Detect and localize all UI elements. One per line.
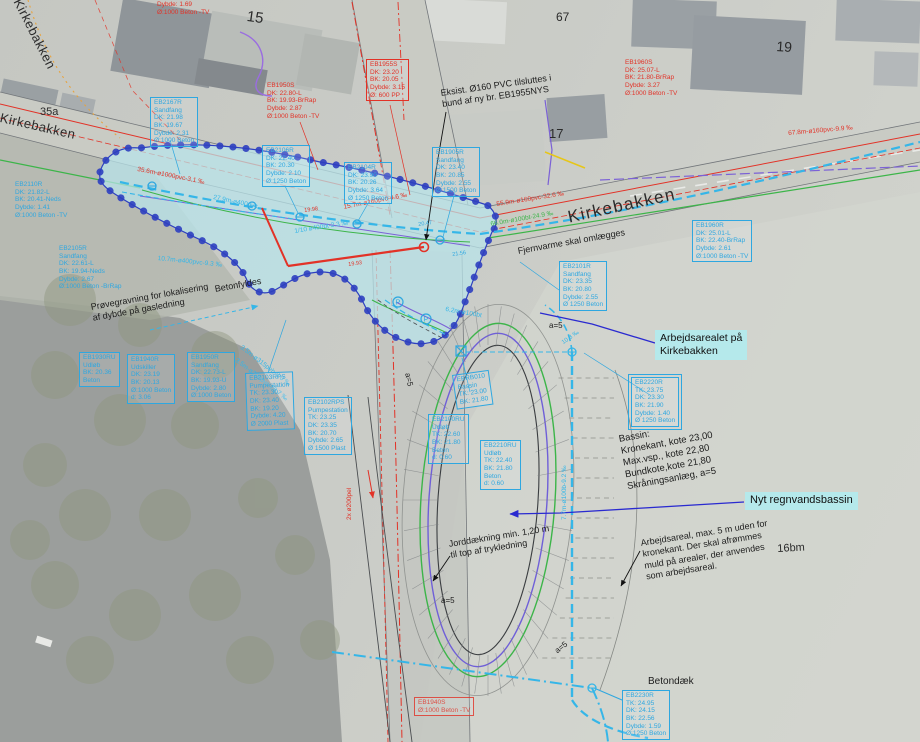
annotation-note: Fjernvarme skal omlægges [517, 227, 626, 257]
pump-icon [421, 314, 431, 324]
manhole-icon [148, 182, 156, 190]
connection-node-icon [420, 243, 429, 252]
trees [10, 274, 340, 684]
manhole-icon [588, 684, 596, 692]
manhole-label-eb2105r: EB2105RSandfangDK: 22.61-LBK: 19.94-Neds… [59, 245, 122, 291]
callout-arbejdsareal: Arbejdsarealet på Kirkebakken [655, 330, 747, 360]
callout-nyt-regnvandsbassin: Nyt regnvandsbassin [745, 492, 858, 510]
building-roof [835, 0, 920, 43]
manhole-label-eb2110r: EB2110RDK: 21.82-LBK: 20.41-NedsDybde: 1… [15, 181, 67, 219]
road-label-kirkebakken: Kirkebakken [566, 184, 678, 227]
pipe-label: 67.8m-ø160pvc-9.9 ‰ [788, 124, 853, 137]
pipe-label: 2x ø200pel [346, 488, 353, 520]
pipe-label: 1/10 ø400bt-2.3 ‰ [294, 220, 349, 235]
house-number: 19 [776, 38, 793, 57]
manhole-icon [436, 236, 444, 244]
annotation-note: a=5 [402, 372, 415, 387]
annotation-note: a=5 [549, 321, 563, 331]
manhole-label-ebrb010: EBRB010BassinTK: 23.00BK: 21.80 [452, 370, 493, 409]
pipe-label: 6.2m-ø100bt [445, 306, 483, 319]
annotation-note: Betonfyldes [214, 276, 262, 295]
house-number: 15 [245, 8, 264, 29]
annotation-note: Betondæk [648, 676, 694, 689]
pipe-label: 10.3 ‰ [561, 330, 580, 346]
manhole-label-eb1950s: EB1950SDK: 22.80-LBK: 19.93-BrRapDybde: … [267, 82, 319, 120]
pump-icon [393, 297, 403, 307]
manhole-label-eb2101r: EB2101RSandfangDK: 23.35BK: 20.80Dybde: … [559, 261, 607, 311]
boat [35, 636, 52, 648]
svg-text:P: P [424, 317, 429, 324]
manhole-label-eb2102rps: EB2102RPSPumpestationTK: 23.25DK: 23.35B… [304, 397, 352, 455]
annotation-note: Arbejdsareal, max. 5 m uden forkronekant… [640, 518, 774, 582]
manhole-icon [353, 220, 361, 228]
manhole-label-eb1950r: EB1950RSandfangDK: 22.73-LBK: 19.93-UDyb… [187, 352, 235, 402]
manhole-label-eb2220r: EB2220RTK: 23.75DK: 23.30BK: 21.90Dybde:… [631, 377, 679, 427]
site-plan-drawing: PP Kirkebakken Kirkebakken Kirkebakken A… [0, 0, 920, 742]
manhole-label-eb1940s: EB1940SØ:1000 Beton -TV [414, 697, 474, 716]
building-roof [58, 93, 95, 120]
basin-rings [390, 299, 587, 702]
house-number: 17 [549, 126, 563, 142]
building-roof [419, 0, 507, 44]
manhole-label-dybde-1-69: Dybde: 1.69Ø:1000 Beton -TV [157, 1, 209, 16]
manhole-label-eb2230r: EB2230RTK: 24.95DK: 24.15BK: 22.56Dybde:… [622, 690, 670, 740]
manhole-label-eb2210ru: EB2210RUUdløbTK: 22.40BK: 21.80Betond: 0… [480, 440, 521, 490]
house-number: 16bm [777, 542, 805, 557]
house-number: 67 [556, 10, 569, 25]
annotation-note: a=5 [553, 640, 570, 656]
manhole-label-eb2100ru: EB2100RUUdløbTK: 22.60BK: 21.80Betond: 0… [428, 414, 469, 464]
manhole-label-eb1955s: EB1955SDK: 23.20BK: 20.05Dybde: 3.15Ø: 6… [366, 59, 409, 101]
pipe-label: 19.98 [304, 206, 318, 214]
pipe-label: 21.56 [452, 250, 466, 258]
house-number: 35a [40, 106, 58, 120]
pipe-label: 66.0m-ø100bt-24.9 ‰ [490, 210, 554, 228]
manhole-symbols: PP [148, 182, 596, 692]
building-roof [873, 51, 918, 87]
annotation-note: a=5 [441, 596, 455, 606]
manhole-label-eb2106r: EB2106RDK: 22.40BK: 20.30Dybde: 2.10Ø:12… [262, 145, 310, 187]
svg-text:P: P [396, 300, 401, 307]
manhole-label-eb1960s: EB1960SDK: 25.07-LBK: 21.80-BrRapDybde: … [625, 59, 677, 97]
manhole-label-eb2167r: EB2167RSandfangDK: 21.98BK: 19.67Dybde: … [150, 97, 198, 147]
pipe-label: 7.7m-ø100b-9.2 ‰ [561, 465, 568, 520]
pipe-label: 19.93 [348, 260, 362, 268]
road-label-kirkebakken-top: Kirkebakken [11, 0, 59, 71]
annotation-note: Bassin:Kronekant, kote 23,00Max.vsp., ko… [618, 418, 720, 493]
manhole-label-eb2103rps: EB2103RPSPumpestationTK: 23.30DK: 23.40B… [245, 371, 295, 430]
pipe-label: 20.47 [418, 220, 432, 228]
annotation-note: Jorddækning min. 1,20 mtil top af trykle… [448, 523, 552, 561]
manhole-label-eb1940r: EB1940RUdskillerDK: 23.19BK: 20.13Ø:1000… [127, 354, 175, 404]
pipe-label: 27.9m-ø400pvc [213, 194, 259, 210]
annotation-note: Eksist. Ø160 PVC tilsluttes ibund af ny … [440, 72, 554, 110]
manhole-icon [568, 348, 576, 356]
pipe-label: 35.6m-ø1000pvc-3.1 ‰ [137, 166, 205, 186]
manhole-icon [296, 213, 304, 221]
manhole-label-eb1905r: EB1905RSandfangDK: 23.40BK: 20.85Dybde: … [432, 147, 480, 197]
bank-vegetation [0, 128, 250, 320]
manhole-label-eb2104r: EB2104RDK: 23.90BK: 20.26Dybde: 3.64Ø 12… [344, 162, 392, 204]
inlet-icon [456, 346, 466, 356]
path-south [372, 250, 470, 742]
manhole-label-eb1960r: EB1960RDK: 25.01-LBK: 22.40-BrRapDybde: … [692, 220, 752, 262]
pipe-label: 55.9m-ø160pvc-32.6 ‰ [496, 190, 565, 208]
manhole-label-eb1930ru: EB1930RUUdløbBK: 20.36Beton [79, 352, 120, 387]
pipe-label: 10.7m-ø400pvc-9.3 ‰ [157, 255, 222, 269]
